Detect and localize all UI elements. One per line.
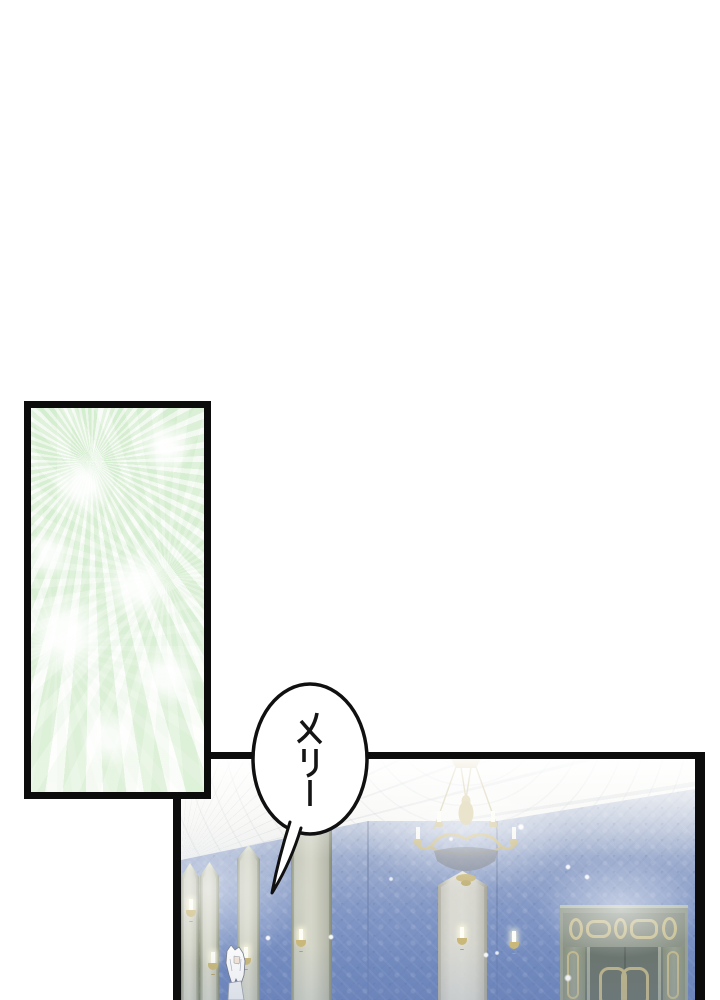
fog-haze (181, 759, 695, 1000)
glyph-me-stroke2 (301, 721, 321, 743)
glyph-me-stroke1 (298, 713, 317, 742)
comic-page: メリー (0, 0, 720, 1000)
fireworks-panel (24, 401, 211, 799)
ballroom-scene (181, 759, 695, 1000)
ballroom-panel (173, 752, 705, 1000)
